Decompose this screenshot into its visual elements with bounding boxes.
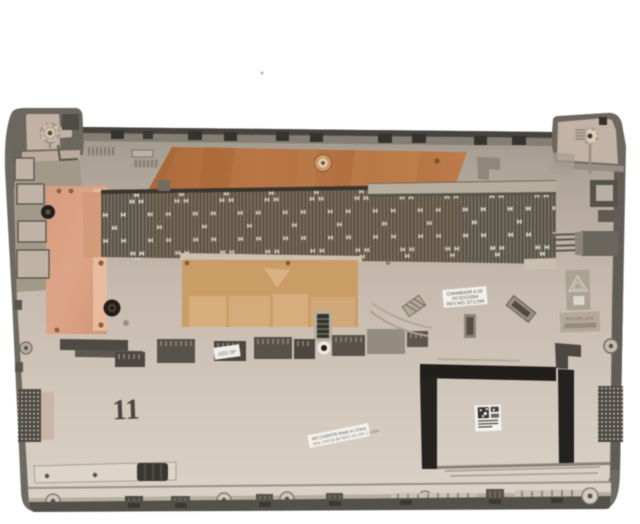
svg-text:11: 11 [112,394,141,427]
svg-text:R-C-DEL-XXX: R-C-DEL-XXX [566,316,594,322]
